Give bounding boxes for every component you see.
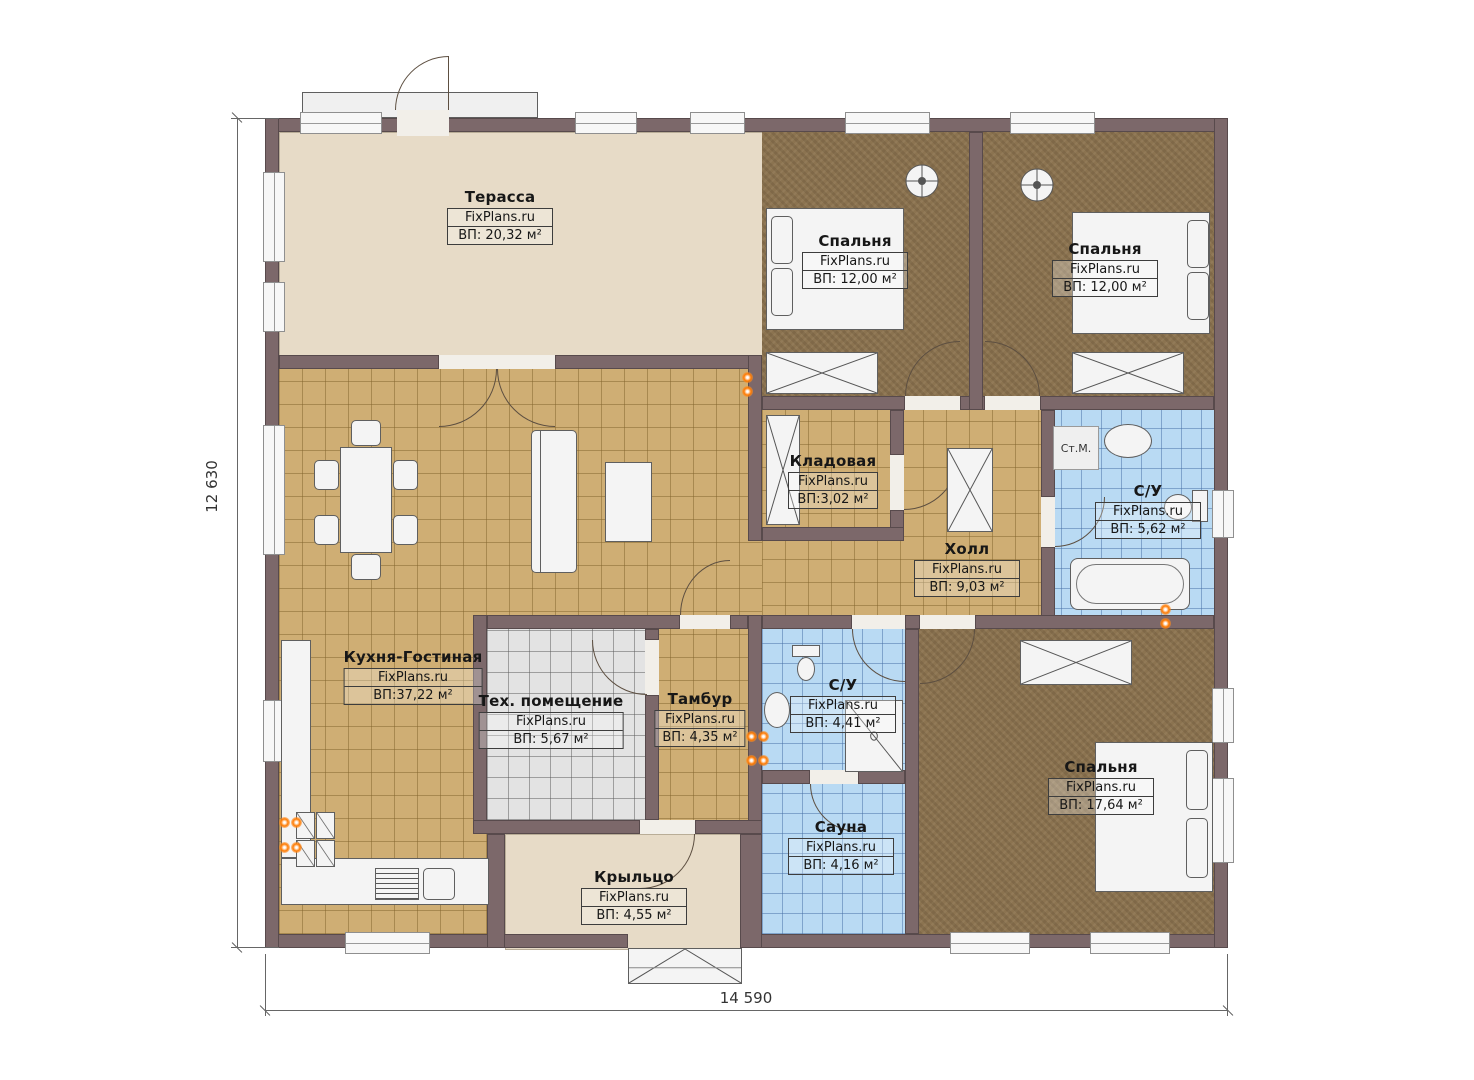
brand-watermark: FixPlans.ru [791, 697, 895, 714]
window [690, 112, 745, 134]
chair [393, 515, 418, 545]
room-name: С/У [790, 676, 896, 694]
window [1212, 490, 1234, 538]
room-area: ВП: 4,55 м² [582, 906, 686, 924]
dimension-line-horizontal [265, 1010, 1228, 1011]
dimension-line-vertical [237, 118, 238, 948]
door-opening [640, 820, 695, 834]
pillow [1186, 750, 1208, 810]
room-name: Кухня-Гостиная [344, 648, 483, 666]
radiator-icon [742, 386, 753, 397]
wall-segment [748, 355, 762, 541]
wall-segment [858, 770, 905, 784]
wardrobe [947, 448, 993, 532]
wall-segment [762, 770, 810, 784]
room-label-bathroom-2: С/У FixPlans.ruВП: 4,41 м² [790, 676, 896, 733]
room-label-porch: Крыльцо FixPlans.ruВП: 4,55 м² [581, 868, 687, 925]
room-name: Холл [914, 540, 1020, 558]
ceiling-light-icon [1018, 166, 1056, 204]
pillow [1187, 272, 1209, 320]
wardrobe [1020, 640, 1132, 685]
room-label-bedroom-3: Спальня FixPlans.ruВП: 17,64 м² [1048, 758, 1154, 815]
room-area: ВП: 17,64 м² [1049, 796, 1153, 814]
pillow [1187, 220, 1209, 268]
door-opening [852, 615, 905, 629]
room-label-hall: Холл FixPlans.ruВП: 9,03 м² [914, 540, 1020, 597]
dimension-extension [231, 118, 279, 119]
bathtub-icon [1070, 558, 1190, 610]
room-name: Терасса [447, 188, 553, 206]
wall-segment [762, 527, 904, 541]
wall-segment [645, 629, 659, 640]
ceiling-light-icon [903, 162, 941, 200]
door-opening [810, 770, 858, 784]
chair [314, 515, 339, 545]
window [263, 425, 285, 555]
room-label-bedroom-2: Спальня FixPlans.ruВП: 12,00 м² [1052, 240, 1158, 297]
room-label-vestibule: Тамбур FixPlans.ruВП: 4,35 м² [654, 690, 745, 747]
window [263, 282, 285, 332]
wardrobe [766, 352, 878, 394]
room-area: ВП: 12,00 м² [803, 270, 907, 288]
wall-segment [473, 820, 640, 834]
brand-watermark: FixPlans.ru [480, 713, 623, 730]
radiator-icon [291, 842, 302, 853]
toilet-icon [792, 645, 820, 657]
wall-segment [905, 615, 920, 629]
dimension-extension [1227, 954, 1228, 1016]
chair [393, 460, 418, 490]
window [300, 112, 382, 134]
room-name: С/У [1095, 482, 1201, 500]
room-area: ВП: 4,16 м² [789, 856, 893, 874]
room-label-storage: Кладовая FixPlans.ruВП:3,02 м² [788, 452, 878, 509]
radiator-icon [758, 731, 769, 742]
room-area: ВП:37,22 м² [345, 686, 482, 704]
wall-segment [555, 355, 762, 369]
brand-watermark: FixPlans.ru [448, 209, 552, 226]
dimension-extension [231, 947, 279, 948]
brand-watermark: FixPlans.ru [1053, 261, 1157, 278]
room-name: Тех. помещение [479, 692, 624, 710]
brand-watermark: FixPlans.ru [1049, 779, 1153, 796]
wall-segment [487, 615, 680, 629]
window [845, 112, 930, 134]
wall-segment [695, 820, 762, 834]
room-label-kitchen-living: Кухня-Гостиная FixPlans.ruВП:37,22 м² [344, 648, 483, 705]
window [1090, 932, 1170, 954]
brand-watermark: FixPlans.ru [915, 561, 1019, 578]
room-name: Кладовая [788, 452, 878, 470]
door-opening [920, 615, 975, 629]
radiator-icon [742, 372, 753, 383]
chair [351, 420, 381, 446]
room-area: ВП:3,02 м² [789, 490, 877, 508]
door-opening [439, 355, 555, 369]
room-area: ВП: 20,32 м² [448, 226, 552, 244]
wall-segment [740, 834, 762, 948]
brand-watermark: FixPlans.ru [789, 473, 877, 490]
coffee-table [605, 462, 652, 542]
window [1010, 112, 1095, 134]
washing-machine-label: Ст.М. [1053, 426, 1099, 470]
brand-watermark: FixPlans.ru [582, 889, 686, 906]
window [950, 932, 1030, 954]
floor-plan-canvas: Ст.М. Терасса FixPlans.ruВП: 20,32 м² Сп… [0, 0, 1474, 1080]
wall-segment [762, 396, 905, 410]
radiator-icon [746, 731, 757, 742]
wall-segment [969, 132, 983, 410]
dimension-label-vertical: 12 630 [203, 460, 221, 513]
radiator-icon [279, 817, 290, 828]
wall-segment [905, 629, 919, 934]
room-label-bathroom-1: С/У FixPlans.ruВП: 5,62 м² [1095, 482, 1201, 539]
room-label-terrace: Терасса FixPlans.ruВП: 20,32 м² [447, 188, 553, 245]
window [345, 932, 430, 954]
radiator-icon [1160, 618, 1171, 629]
room-area: ВП: 4,35 м² [655, 728, 744, 746]
room-label-tech-room: Тех. помещение FixPlans.ruВП: 5,67 м² [479, 692, 624, 749]
room-area: ВП: 12,00 м² [1053, 278, 1157, 296]
terrace-floor [279, 132, 764, 364]
dimension-label-horizontal: 14 590 [720, 989, 773, 1007]
room-label-bedroom-1: Спальня FixPlans.ruВП: 12,00 м² [802, 232, 908, 289]
radiator-icon [1160, 604, 1171, 615]
wall-segment [975, 615, 1214, 629]
sink-drainer-icon [375, 868, 419, 900]
dimension-extension [265, 954, 266, 1016]
room-name: Спальня [802, 232, 908, 250]
brand-watermark: FixPlans.ru [655, 711, 744, 728]
door-opening [985, 396, 1040, 410]
door-opening [1041, 497, 1055, 547]
room-area: ВП: 5,62 м² [1096, 520, 1200, 538]
window [1212, 688, 1234, 743]
room-area: ВП: 5,67 м² [480, 730, 623, 748]
brand-watermark: FixPlans.ru [345, 669, 482, 686]
wall-segment [762, 615, 852, 629]
door-arc [395, 56, 449, 110]
pillow [771, 268, 793, 316]
radiator-icon [291, 817, 302, 828]
room-area: ВП: 9,03 м² [915, 578, 1019, 596]
door-opening [680, 615, 730, 629]
room-name: Спальня [1048, 758, 1154, 776]
door-opening [397, 110, 449, 136]
room-name: Тамбур [654, 690, 745, 708]
stove-burner-icon [316, 840, 335, 867]
wall-segment [279, 355, 439, 369]
wall-segment [487, 834, 505, 948]
window [263, 172, 285, 262]
door-opening [645, 640, 659, 695]
room-name: Сауна [788, 818, 894, 836]
kitchen-sink-icon [423, 868, 455, 900]
chair [351, 554, 381, 580]
stove-burner-icon [316, 812, 335, 839]
room-area: ВП: 4,41 м² [791, 714, 895, 732]
wall-segment [265, 934, 628, 948]
chair [314, 460, 339, 490]
brand-watermark: FixPlans.ru [1096, 503, 1200, 520]
pillow [771, 216, 793, 264]
door-opening [905, 396, 960, 410]
room-name: Спальня [1052, 240, 1158, 258]
radiator-icon [758, 755, 769, 766]
brand-watermark: FixPlans.ru [803, 253, 907, 270]
wall-segment [1040, 396, 1214, 410]
brand-watermark: FixPlans.ru [789, 839, 893, 856]
wardrobe [1072, 352, 1184, 394]
door-opening [890, 455, 904, 510]
window [1212, 778, 1234, 863]
room-name: Крыльцо [581, 868, 687, 886]
bathroom-sink-icon [764, 692, 790, 728]
bathroom-sink-icon [1104, 424, 1152, 458]
wall-segment [730, 615, 748, 629]
dining-table [340, 447, 392, 553]
radiator-icon [279, 842, 290, 853]
pillow [1186, 818, 1208, 878]
sofa [531, 430, 577, 573]
porch-steps [628, 948, 742, 984]
wall-segment [890, 410, 904, 455]
room-label-sauna: Сауна FixPlans.ruВП: 4,16 м² [788, 818, 894, 875]
window [575, 112, 637, 134]
radiator-icon [746, 755, 757, 766]
